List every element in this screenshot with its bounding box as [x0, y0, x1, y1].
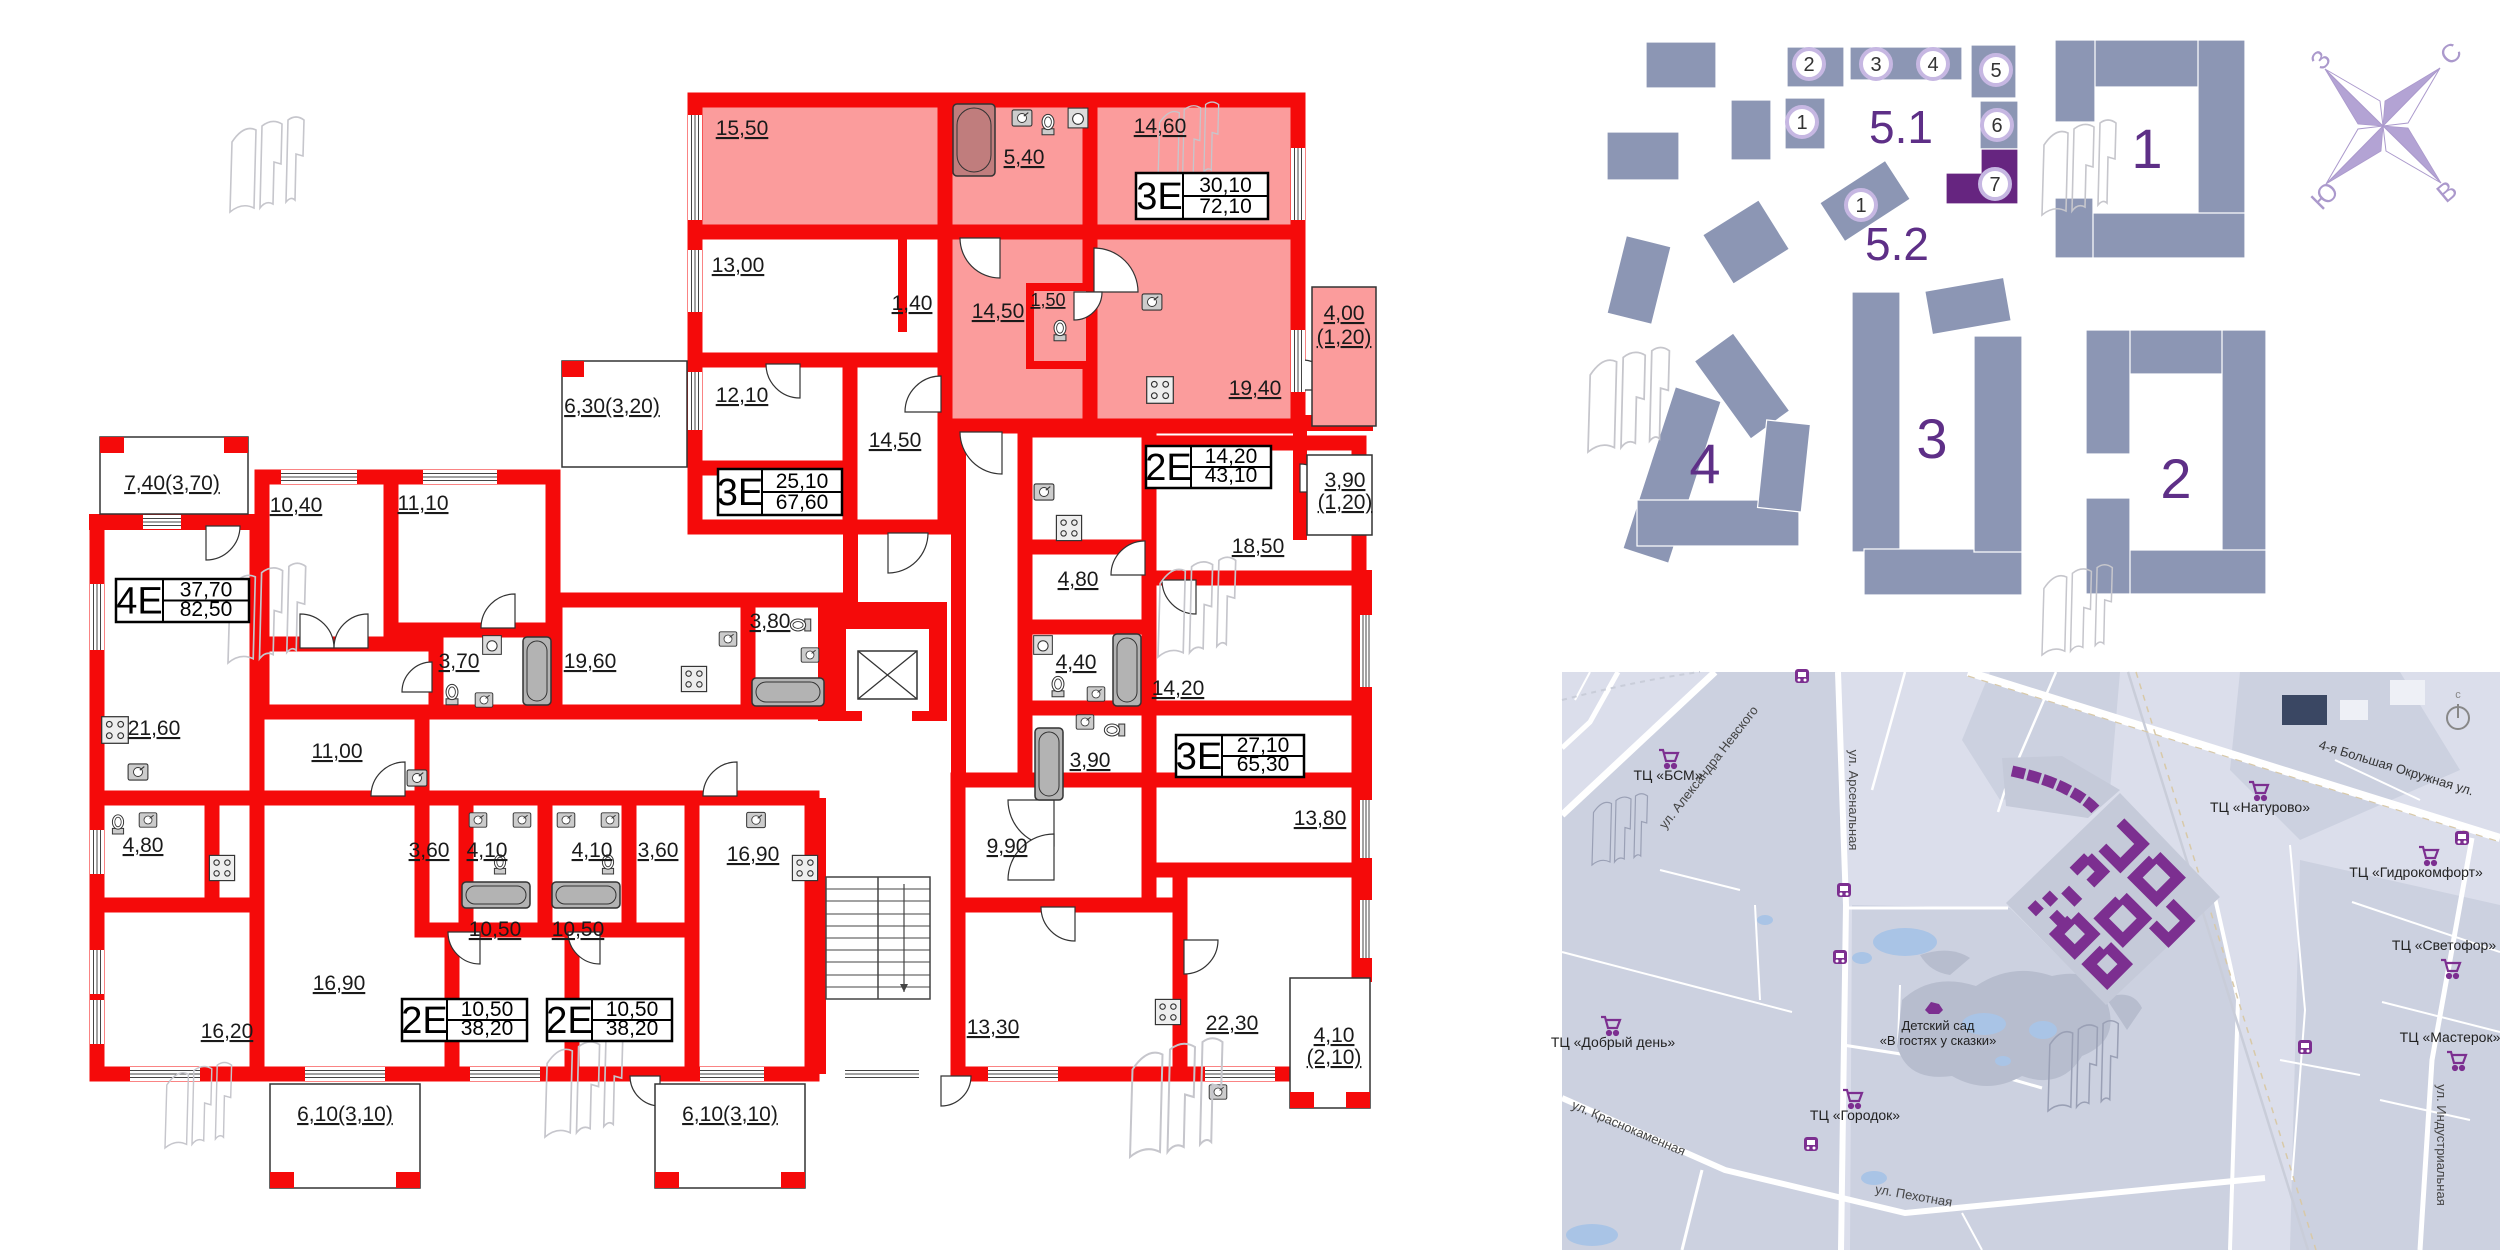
svg-text:6,10(3,10): 6,10(3,10) — [297, 1103, 393, 1126]
svg-text:2: 2 — [1803, 54, 1814, 76]
svg-text:10,50: 10,50 — [469, 918, 522, 941]
svg-text:7: 7 — [1989, 174, 2000, 196]
svg-text:1,40: 1,40 — [892, 292, 933, 315]
svg-text:1: 1 — [2131, 117, 2162, 180]
svg-text:4: 4 — [1689, 432, 1720, 495]
svg-text:4,10: 4,10 — [1314, 1024, 1355, 1047]
svg-text:с: с — [2455, 689, 2461, 701]
svg-text:12,10: 12,10 — [716, 384, 769, 407]
svg-text:3: 3 — [1916, 407, 1947, 470]
svg-text:1: 1 — [1796, 112, 1807, 134]
svg-text:1,50: 1,50 — [1030, 290, 1065, 310]
svg-text:7,40(3,70): 7,40(3,70) — [124, 472, 220, 495]
svg-text:Детский сад: Детский сад — [1901, 1018, 1974, 1033]
svg-text:16,20: 16,20 — [201, 1020, 254, 1043]
svg-text:4,10: 4,10 — [467, 839, 508, 862]
svg-text:4,80: 4,80 — [123, 834, 164, 857]
svg-text:3,80: 3,80 — [750, 610, 791, 633]
svg-text:10,50: 10,50 — [552, 918, 605, 941]
svg-text:(1,20): (1,20) — [1317, 326, 1372, 349]
svg-text:5: 5 — [1990, 60, 2001, 82]
svg-text:16,90: 16,90 — [313, 972, 366, 995]
svg-text:19,40: 19,40 — [1229, 377, 1282, 400]
svg-text:13,00: 13,00 — [712, 254, 765, 277]
svg-text:6,10(3,10): 6,10(3,10) — [682, 1103, 778, 1126]
svg-text:67,60: 67,60 — [776, 491, 829, 514]
svg-text:ТЦ «Городок»: ТЦ «Городок» — [1810, 1107, 1900, 1123]
svg-text:(1,20): (1,20) — [1318, 491, 1373, 514]
svg-text:5,40: 5,40 — [1004, 146, 1045, 169]
svg-text:10,40: 10,40 — [270, 494, 323, 517]
svg-text:«В гостях у сказки»: «В гостях у сказки» — [1880, 1033, 1997, 1048]
svg-text:3,90: 3,90 — [1070, 749, 1111, 772]
svg-text:3Е: 3Е — [1136, 176, 1182, 218]
svg-text:19,60: 19,60 — [564, 650, 617, 673]
svg-text:ТЦ «Мастерок»: ТЦ «Мастерок» — [2400, 1029, 2500, 1045]
svg-text:4Е: 4Е — [116, 581, 162, 623]
svg-text:6: 6 — [1991, 115, 2002, 137]
svg-text:ТЦ «Добрый день»: ТЦ «Добрый день» — [1551, 1034, 1676, 1050]
svg-text:11,00: 11,00 — [312, 740, 363, 763]
svg-text:14,50: 14,50 — [972, 300, 1025, 323]
svg-text:13,30: 13,30 — [967, 1016, 1020, 1039]
svg-text:6,30(3,20): 6,30(3,20) — [564, 395, 660, 418]
svg-text:ТЦ «Натурово»: ТЦ «Натурово» — [2210, 799, 2310, 815]
svg-text:15,50: 15,50 — [716, 117, 769, 140]
svg-text:16,90: 16,90 — [727, 843, 780, 866]
svg-text:21,60: 21,60 — [128, 717, 181, 740]
svg-text:ул. Арсенальная: ул. Арсенальная — [1846, 750, 1861, 851]
svg-text:3,70: 3,70 — [439, 650, 480, 673]
svg-text:ТЦ «Гидрокомфорт»: ТЦ «Гидрокомфорт» — [2349, 864, 2483, 880]
svg-text:3,60: 3,60 — [409, 839, 450, 862]
svg-text:4: 4 — [1927, 54, 1938, 76]
svg-text:65,30: 65,30 — [1237, 753, 1290, 776]
svg-text:ул. Индустриальная: ул. Индустриальная — [2434, 1084, 2449, 1205]
svg-text:13,80: 13,80 — [1294, 807, 1347, 830]
svg-text:4,10: 4,10 — [572, 839, 613, 862]
svg-text:4,00: 4,00 — [1324, 302, 1365, 325]
svg-text:2Е: 2Е — [546, 1000, 592, 1042]
svg-text:25,10: 25,10 — [776, 470, 829, 493]
svg-text:14,60: 14,60 — [1134, 115, 1187, 138]
svg-text:11,10: 11,10 — [398, 492, 449, 515]
svg-text:82,50: 82,50 — [180, 598, 233, 621]
svg-text:18,50: 18,50 — [1232, 535, 1285, 558]
svg-text:(2,10): (2,10) — [1307, 1046, 1362, 1069]
svg-text:5.2: 5.2 — [1865, 218, 1929, 270]
svg-text:5.1: 5.1 — [1869, 101, 1933, 153]
svg-text:3Е: 3Е — [717, 472, 763, 514]
svg-text:1: 1 — [1855, 195, 1866, 217]
svg-text:3,60: 3,60 — [638, 839, 679, 862]
svg-text:72,10: 72,10 — [1199, 195, 1252, 218]
svg-text:9,90: 9,90 — [987, 835, 1028, 858]
svg-text:2: 2 — [2160, 447, 2191, 510]
svg-text:3Е: 3Е — [1176, 736, 1222, 778]
svg-text:2Е: 2Е — [1145, 447, 1191, 489]
svg-text:ТЦ «Светофор»: ТЦ «Светофор» — [2392, 937, 2496, 953]
svg-text:3,90: 3,90 — [1325, 469, 1366, 492]
svg-text:43,10: 43,10 — [1205, 464, 1258, 487]
svg-text:14,50: 14,50 — [869, 429, 922, 452]
svg-text:38,20: 38,20 — [606, 1017, 659, 1040]
svg-text:2Е: 2Е — [401, 1000, 447, 1042]
svg-text:14,20: 14,20 — [1152, 677, 1205, 700]
svg-text:4,80: 4,80 — [1058, 568, 1099, 591]
svg-text:22,30: 22,30 — [1206, 1012, 1259, 1035]
svg-text:4,40: 4,40 — [1056, 651, 1097, 674]
svg-text:30,10: 30,10 — [1199, 174, 1252, 197]
svg-text:3: 3 — [1870, 54, 1881, 76]
svg-text:38,20: 38,20 — [461, 1017, 514, 1040]
